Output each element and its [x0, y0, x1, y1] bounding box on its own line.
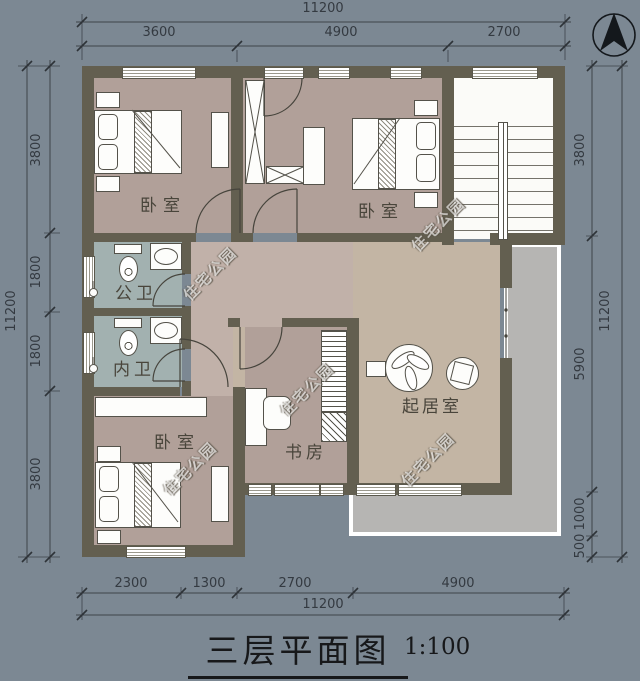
wall-bath-east-3: [182, 381, 191, 396]
label-bedroom-top-left: 卧室: [115, 197, 211, 215]
dresser: [211, 112, 229, 168]
dim-right-seg-4: 500: [574, 516, 588, 576]
plan-title: 三层平面图: [188, 624, 408, 679]
nightstand: [96, 176, 120, 192]
pillow: [416, 154, 436, 182]
toilet-tank: [114, 244, 142, 254]
sink-basin: [154, 322, 178, 339]
terrace-east: [508, 247, 557, 532]
window-study-south-3: [320, 484, 344, 496]
hanger-closet: [95, 397, 207, 417]
pillow: [98, 114, 118, 140]
window-bedroom1-north: [122, 67, 196, 79]
window-study-south-1: [248, 484, 272, 496]
label-bedroom-top-right: 卧室: [333, 203, 429, 221]
plan-scale: 1:100: [404, 634, 494, 660]
toilet-tank: [114, 318, 142, 328]
window-bedroom3-south: [126, 546, 186, 558]
toilet-bowl: [119, 330, 138, 356]
dim-right-seg-2: 5900: [574, 334, 588, 394]
dim-left-seg-1: 3800: [30, 120, 44, 180]
dim-right-seg-1: 3800: [574, 120, 588, 180]
hall-corridor-floor: [191, 327, 233, 396]
north-arrow-icon: [593, 13, 635, 56]
dim-left-seg-4: 3800: [30, 444, 44, 504]
pillow: [99, 466, 119, 492]
dim-left-seg-2: 1800: [30, 242, 44, 302]
bed-runner: [378, 119, 396, 189]
label-living-room: 起居室: [384, 398, 480, 416]
nightstand: [414, 100, 438, 116]
sink-basin: [154, 248, 178, 265]
window-bedroom2-north-2: [390, 67, 422, 79]
nightstand: [97, 446, 121, 462]
bed-runner: [134, 111, 152, 173]
wall-living-east-b: [500, 358, 512, 495]
pillow: [98, 144, 118, 170]
dim-top-seg-3: 2700: [474, 26, 534, 40]
round-table: [385, 344, 433, 392]
label-study: 书房: [258, 444, 354, 462]
window-bedroom2-north-1: [318, 67, 350, 79]
dresser: [211, 466, 229, 522]
dim-bottom-total: 11200: [293, 598, 353, 612]
wall-mid-a: [82, 233, 196, 242]
wall-study-east: [347, 318, 359, 495]
dim-bottom-seg-1: 2300: [101, 577, 161, 591]
toilet-bowl: [119, 256, 138, 282]
dim-right-total: 11200: [599, 281, 613, 341]
dim-left-total: 11200: [5, 281, 19, 341]
window-stair-north: [472, 67, 538, 79]
wall-living-east-a: [500, 238, 512, 288]
floor-plan-page: { "title": { "text": "三层平面图", "scale": "…: [0, 0, 640, 681]
nightstand: [96, 92, 120, 108]
wall-east-stair: [553, 66, 565, 245]
wall-bedroom1-east: [231, 66, 243, 242]
label-private-bathroom: 内卫: [86, 361, 182, 379]
nightstand: [97, 530, 121, 544]
window-study-south-2: [274, 484, 320, 496]
bookshelf-cabinet: [321, 412, 347, 442]
dim-top-seg-2: 4900: [311, 26, 371, 40]
wall-bedroom3-north: [82, 387, 180, 396]
dim-bottom-seg-4: 4900: [428, 577, 488, 591]
wardrobe: [245, 80, 265, 184]
pillow: [416, 122, 436, 150]
low-cabinet: [266, 166, 304, 184]
dim-left-seg-3: 1800: [30, 321, 44, 381]
dresser: [303, 127, 325, 185]
dim-bottom-seg-3: 2700: [265, 577, 325, 591]
side-table: [366, 361, 386, 377]
window-closet-north: [264, 67, 304, 79]
stair-rail: [498, 122, 508, 240]
dim-top-seg-1: 3600: [129, 26, 189, 40]
pillow: [99, 496, 119, 522]
dim-top-total: 11200: [293, 2, 353, 16]
terrace-south: [353, 495, 557, 532]
wall-bedroom3-east: [233, 387, 245, 557]
dim-bottom-seg-2: 1300: [179, 577, 239, 591]
wall-bath-east-1: [182, 242, 191, 274]
wall-study-north-a: [228, 318, 240, 327]
